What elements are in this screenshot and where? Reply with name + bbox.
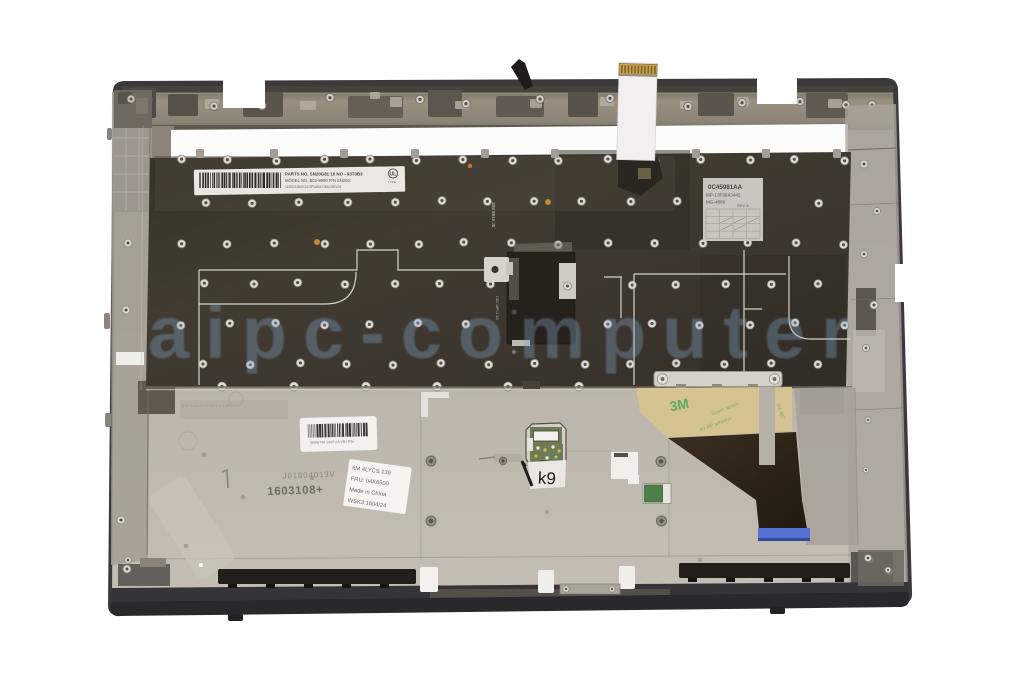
svg-text:UL: UL (390, 172, 397, 178)
svg-text:TYPE: TYPE (388, 180, 396, 184)
svg-text:J01804013V: J01804013V (283, 470, 336, 481)
svg-text:0C45981AA: 0C45981AA (708, 184, 743, 191)
svg-text:MODEL NO. B02-8900 P/N SN20G: MODEL NO. B02-8900 P/N SN20G (285, 178, 351, 183)
svg-text:11B02J4B0K31GP0AB4T0B0 REV03: 11B02J4B0K31GP0AB4T0B0 REV03 (285, 185, 341, 189)
svg-text:PARTS NO. SN20G81 10 NO - 93T0: PARTS NO. SN20G81 10 NO - 93T0B3 (285, 172, 363, 177)
svg-text:REV A: REV A (737, 203, 749, 208)
svg-text:k9: k9 (537, 468, 556, 488)
svg-text:PR SLACK-02 REV 1.1 MG: PR SLACK-02 REV 1.1 MG (183, 403, 232, 408)
svg-text:3B8 5B10 J0: 3B8 5B10 J0 (491, 202, 496, 228)
svg-text:MP-13F36XJ442: MP-13F36XJ442 (706, 193, 741, 198)
svg-text:MG-4806: MG-4806 (706, 200, 726, 205)
svg-text:aipc-computer: aipc-computer (148, 291, 866, 374)
svg-text:1603108+: 1603108+ (267, 484, 324, 498)
